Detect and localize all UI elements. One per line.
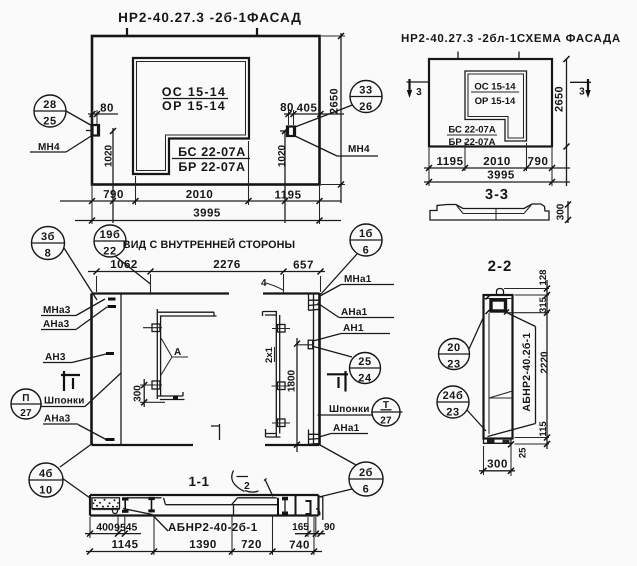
svg-text:3б: 3б [41, 231, 55, 243]
svg-text:25: 25 [43, 116, 56, 128]
svg-text:657: 657 [293, 260, 314, 272]
svg-text:300: 300 [133, 385, 144, 402]
svg-text:3: 3 [579, 87, 585, 98]
svg-text:10: 10 [39, 485, 52, 497]
svg-text:90: 90 [324, 522, 336, 533]
svg-text:НР2-40.27.3 -2бл-1СХЕМА ФАСАДА: НР2-40.27.3 -2бл-1СХЕМА ФАСАДА [401, 33, 621, 45]
svg-text:25: 25 [358, 356, 371, 368]
svg-text:33: 33 [359, 85, 372, 97]
svg-text:20: 20 [447, 342, 460, 354]
svg-text:165: 165 [292, 522, 309, 533]
svg-text:1195: 1195 [275, 190, 302, 202]
svg-text:АНа1: АНа1 [341, 307, 368, 318]
svg-text:720: 720 [241, 539, 262, 551]
svg-text:2010: 2010 [483, 156, 511, 168]
svg-text:3-3: 3-3 [485, 187, 509, 203]
svg-text:2-2: 2-2 [488, 258, 513, 275]
svg-text:28: 28 [43, 99, 56, 111]
svg-text:2010: 2010 [186, 189, 214, 201]
svg-text:128: 128 [538, 270, 549, 286]
svg-text:25: 25 [518, 447, 529, 458]
svg-text:ОС 15-14: ОС 15-14 [162, 85, 227, 99]
svg-text:1-1: 1-1 [188, 474, 209, 489]
svg-text:2: 2 [244, 481, 250, 492]
svg-text:6: 6 [363, 245, 370, 257]
svg-text:2276: 2276 [213, 259, 241, 271]
svg-text:27: 27 [380, 416, 392, 427]
svg-text:Шпонки: Шпонки [44, 396, 85, 407]
svg-text:3: 3 [416, 87, 422, 98]
svg-text:1390: 1390 [189, 539, 217, 551]
svg-text:АНа3: АНа3 [43, 319, 70, 330]
svg-text:1б: 1б [359, 228, 373, 240]
svg-text:23: 23 [447, 359, 460, 371]
svg-text:95: 95 [114, 522, 126, 534]
svg-text:300: 300 [556, 203, 567, 220]
svg-text:П: П [22, 393, 29, 404]
svg-text:24: 24 [358, 373, 372, 385]
svg-text:740: 740 [289, 540, 310, 552]
svg-text:300: 300 [487, 459, 508, 471]
svg-text:АБНР2-40-2б-1: АБНР2-40-2б-1 [168, 522, 258, 534]
svg-text:80: 80 [280, 102, 294, 114]
svg-text:БР 22-07А: БР 22-07А [449, 137, 496, 148]
svg-text:2б: 2б [359, 467, 373, 479]
svg-text:4б: 4б [39, 468, 53, 480]
svg-text:115: 115 [538, 421, 549, 437]
svg-text:БР 22-07А: БР 22-07А [178, 160, 245, 174]
svg-text:790: 790 [103, 189, 124, 201]
svg-text:А: А [174, 347, 181, 358]
svg-text:1800: 1800 [287, 369, 298, 392]
svg-text:405: 405 [297, 103, 318, 115]
svg-text:2650: 2650 [554, 86, 566, 112]
svg-text:1020: 1020 [104, 144, 115, 167]
svg-text:315: 315 [538, 296, 549, 313]
svg-text:27: 27 [20, 408, 32, 419]
svg-text:23: 23 [446, 407, 459, 419]
svg-text:АБНР2-40.2б-1: АБНР2-40.2б-1 [521, 332, 533, 411]
svg-text:МНа1: МНа1 [344, 274, 372, 285]
svg-text:АН3: АН3 [45, 352, 66, 363]
svg-text:БС 22-07А: БС 22-07А [448, 125, 496, 136]
svg-text:НР2-40.27.3 -2б-1ФАСАД: НР2-40.27.3 -2б-1ФАСАД [118, 10, 302, 25]
svg-text:МН4: МН4 [348, 144, 370, 155]
svg-text:80: 80 [100, 103, 114, 115]
svg-text:1145: 1145 [112, 539, 139, 551]
svg-text:1020: 1020 [277, 144, 288, 167]
svg-text:19б: 19б [100, 229, 121, 241]
svg-text:БС 22-07А: БС 22-07А [178, 145, 246, 159]
svg-text:3995: 3995 [487, 170, 515, 182]
svg-text:400: 400 [96, 522, 114, 534]
svg-text:22: 22 [103, 246, 116, 258]
svg-text:АНа3: АНа3 [44, 414, 71, 425]
svg-text:АН1: АН1 [343, 323, 364, 334]
svg-text:24б: 24б [443, 390, 464, 402]
svg-text:ОР 15-14: ОР 15-14 [162, 99, 226, 113]
svg-text:ВИД С ВНУТРЕННЕЙ СТОРОНЫ: ВИД С ВНУТРЕННЕЙ СТОРОНЫ [123, 238, 295, 251]
svg-text:6: 6 [363, 484, 370, 496]
svg-text:Шпонки: Шпонки [329, 404, 370, 415]
svg-text:3995: 3995 [193, 208, 221, 220]
svg-text:26: 26 [359, 101, 372, 113]
svg-text:1195: 1195 [437, 156, 464, 168]
svg-text:2х1: 2х1 [264, 346, 275, 363]
svg-text:2220: 2220 [540, 351, 551, 374]
svg-text:45: 45 [126, 522, 138, 534]
svg-text:ОС 15-14: ОС 15-14 [474, 82, 516, 93]
svg-text:ОР 15-14: ОР 15-14 [475, 96, 516, 107]
svg-text:АНа1: АНа1 [333, 423, 360, 434]
svg-text:2650: 2650 [329, 88, 341, 114]
svg-text:790: 790 [528, 156, 549, 168]
svg-text:МНа3: МНа3 [43, 305, 71, 316]
svg-text:1062: 1062 [110, 259, 138, 271]
svg-text:8: 8 [45, 248, 52, 260]
